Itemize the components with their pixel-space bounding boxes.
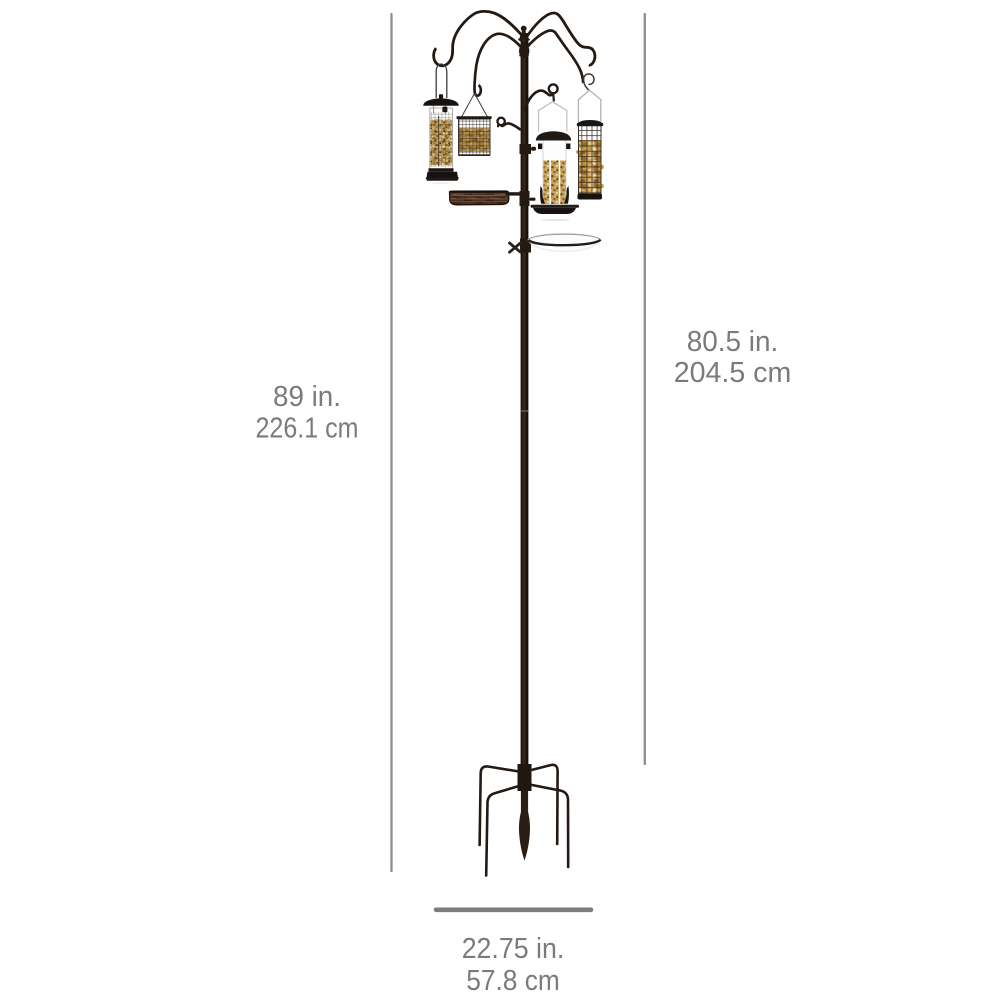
svg-text:22.75 in.: 22.75 in. xyxy=(462,933,565,965)
svg-text:80.5 in.: 80.5 in. xyxy=(687,326,779,358)
svg-text:89 in.: 89 in. xyxy=(273,381,341,413)
svg-text:57.8 cm: 57.8 cm xyxy=(466,965,560,997)
svg-text:204.5 cm: 204.5 cm xyxy=(674,357,792,389)
svg-text:226.1 cm: 226.1 cm xyxy=(256,413,359,445)
